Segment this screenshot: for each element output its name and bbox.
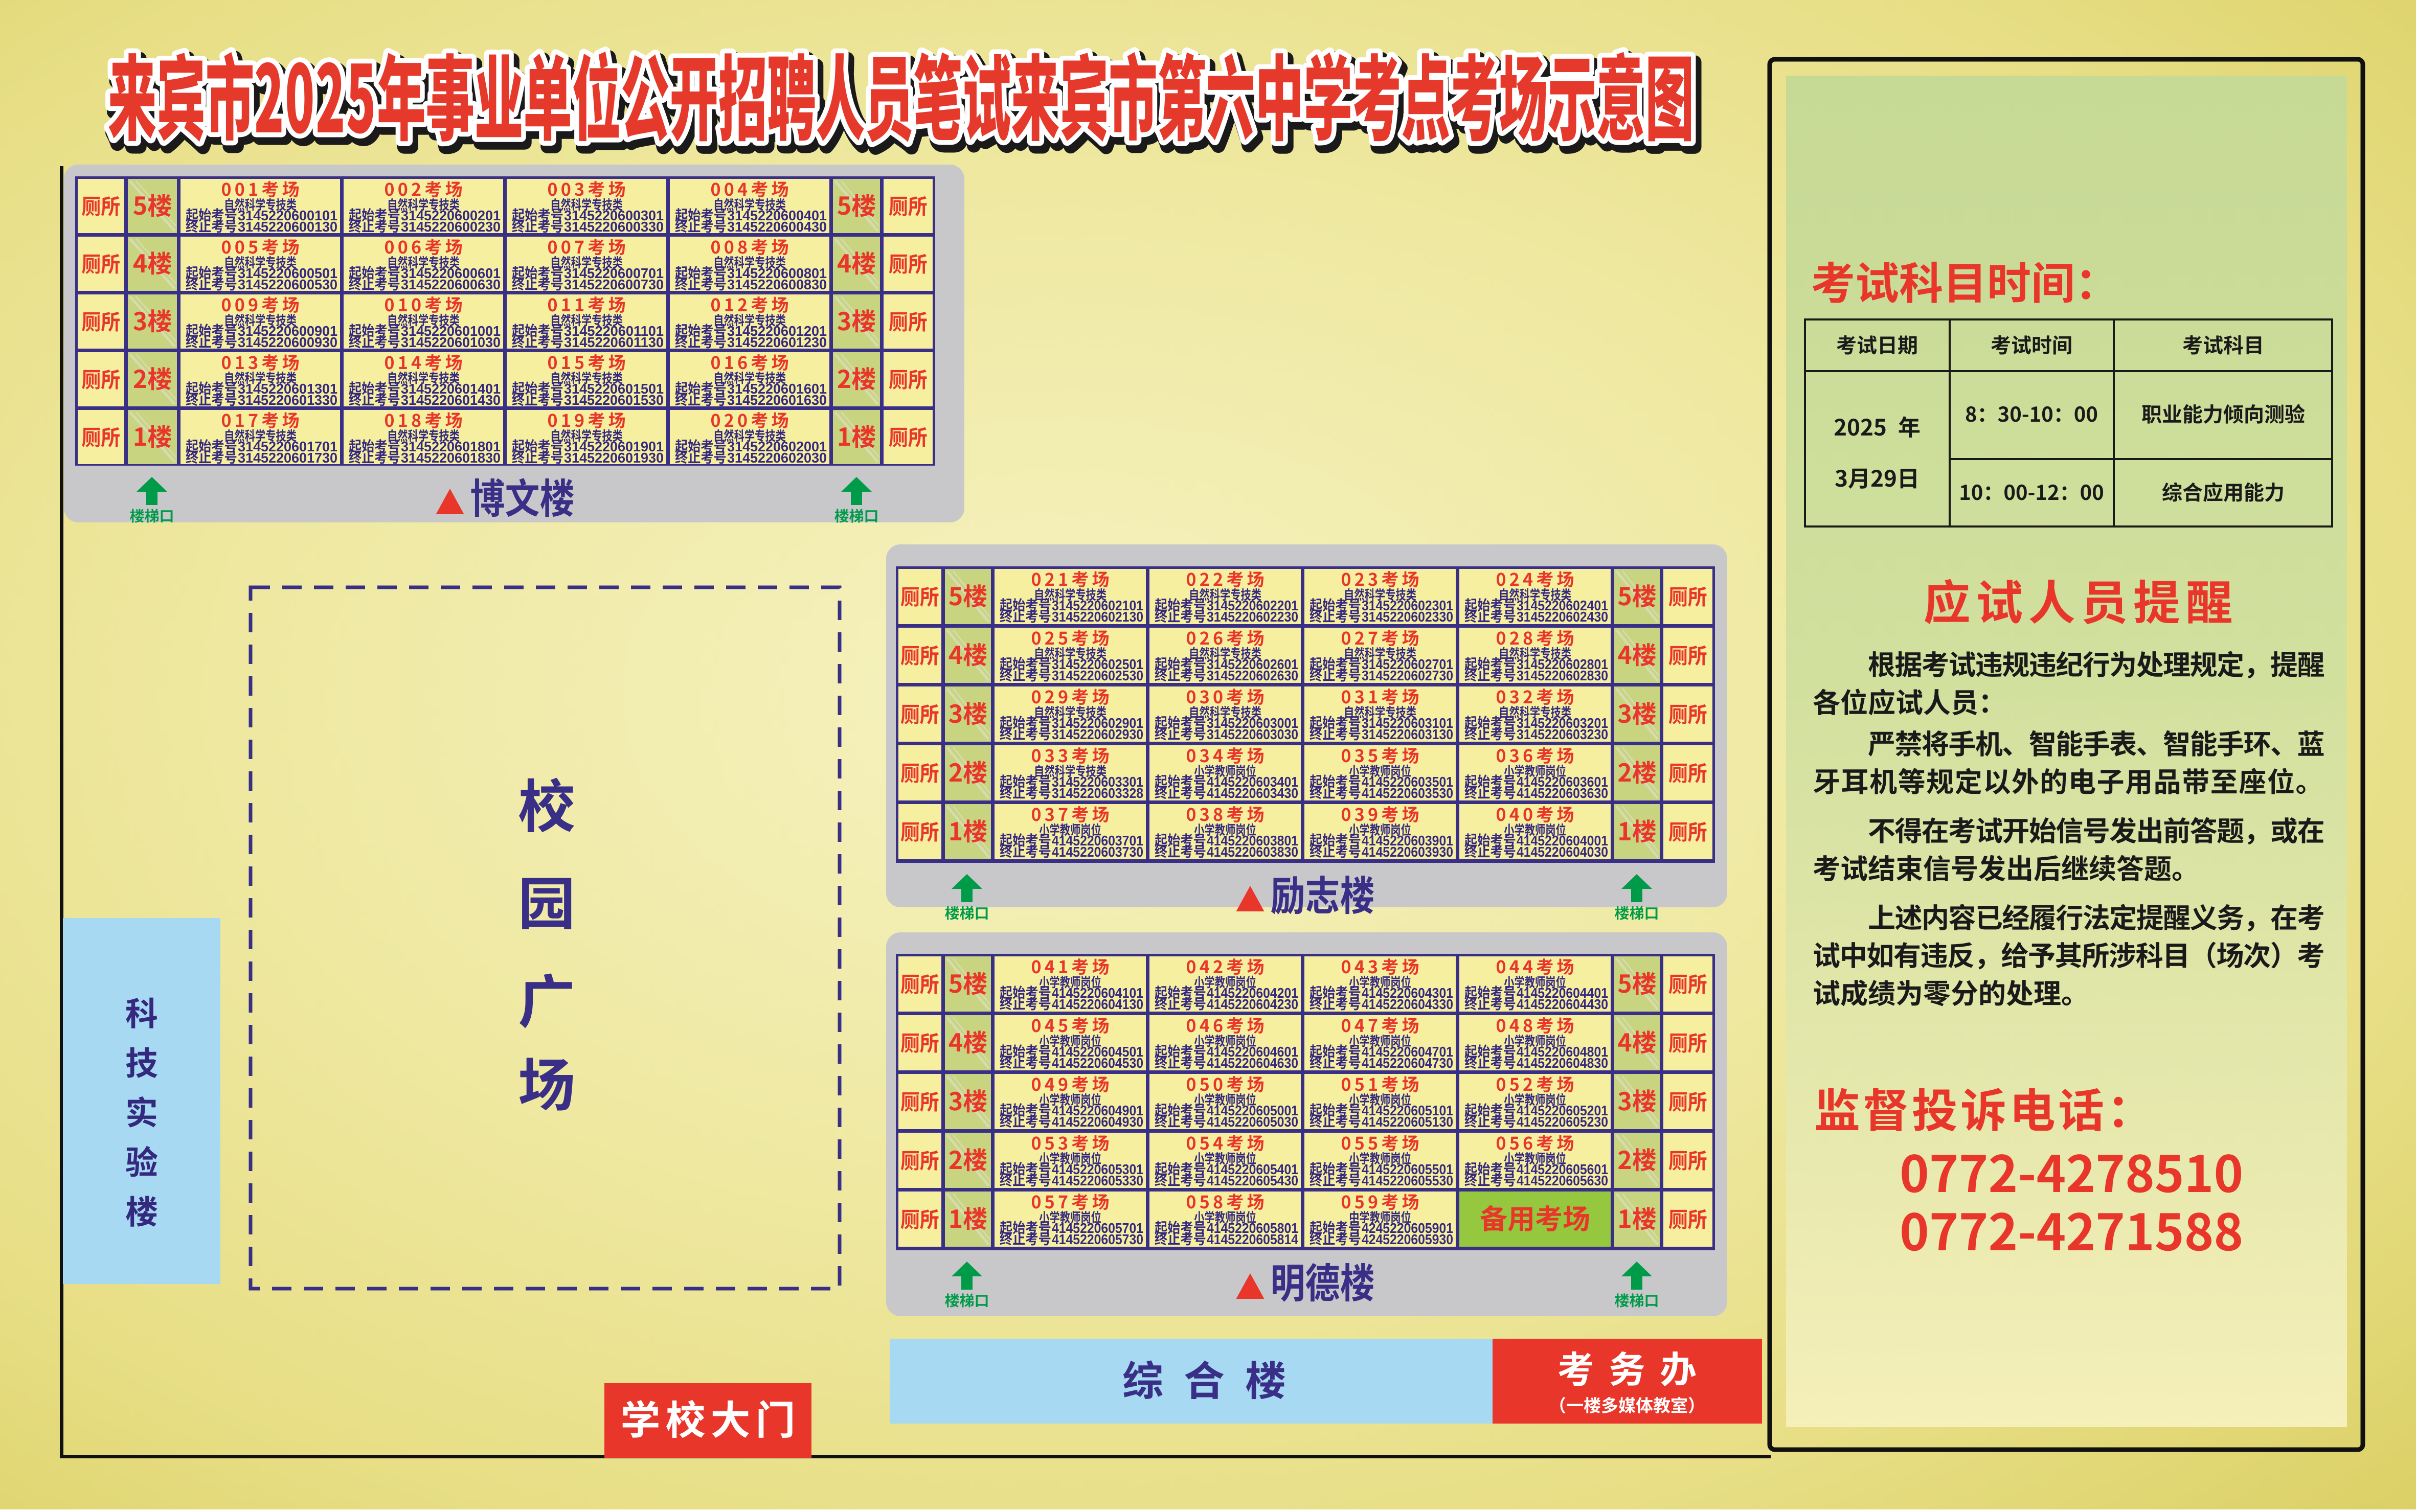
svg-text:3145220601130: 3145220601130 bbox=[564, 334, 664, 350]
svg-text:3145220603030: 3145220603030 bbox=[1207, 726, 1298, 742]
svg-text:3145220602230: 3145220602230 bbox=[1207, 609, 1298, 625]
svg-text:3145220601430: 3145220601430 bbox=[401, 392, 501, 408]
svg-text:4145220605530: 4145220605530 bbox=[1362, 1173, 1453, 1188]
svg-text:3145220601230: 3145220601230 bbox=[727, 334, 827, 350]
svg-text:3145220603130: 3145220603130 bbox=[1362, 726, 1453, 742]
svg-text:3145220602530: 3145220602530 bbox=[1052, 668, 1143, 683]
svg-text:3145220600330: 3145220600330 bbox=[564, 219, 664, 235]
svg-text:4145220603430: 4145220603430 bbox=[1207, 785, 1298, 801]
svg-text:3145220600630: 3145220600630 bbox=[401, 277, 501, 292]
svg-text:4145220604230: 4145220604230 bbox=[1207, 996, 1298, 1012]
svg-text:4145220605030: 4145220605030 bbox=[1207, 1114, 1298, 1130]
svg-text:3145220603328: 3145220603328 bbox=[1052, 785, 1143, 801]
svg-text:3145220601930: 3145220601930 bbox=[564, 450, 664, 466]
svg-text:4145220605730: 4145220605730 bbox=[1052, 1231, 1143, 1247]
svg-text:4145220604130: 4145220604130 bbox=[1052, 996, 1143, 1012]
svg-text:3145220602830: 3145220602830 bbox=[1517, 668, 1608, 683]
svg-text:3145220601030: 3145220601030 bbox=[401, 334, 501, 350]
svg-text:4245220605930: 4245220605930 bbox=[1362, 1231, 1453, 1247]
svg-text:3145220603230: 3145220603230 bbox=[1517, 726, 1608, 742]
svg-text:4145220605814: 4145220605814 bbox=[1207, 1231, 1298, 1247]
svg-text:4145220604330: 4145220604330 bbox=[1362, 996, 1453, 1012]
svg-text:3145220600430: 3145220600430 bbox=[727, 219, 827, 235]
svg-text:4145220604730: 4145220604730 bbox=[1362, 1055, 1453, 1071]
svg-text:4145220603730: 4145220603730 bbox=[1052, 844, 1143, 860]
svg-text:4145220604030: 4145220604030 bbox=[1517, 844, 1608, 860]
svg-text:3145220601630: 3145220601630 bbox=[727, 392, 827, 408]
svg-text:3145220601730: 3145220601730 bbox=[238, 450, 337, 466]
svg-text:4145220605130: 4145220605130 bbox=[1362, 1114, 1453, 1130]
svg-text:3145220600130: 3145220600130 bbox=[238, 219, 337, 235]
svg-text:3145220602430: 3145220602430 bbox=[1517, 609, 1608, 625]
svg-text:3145220600230: 3145220600230 bbox=[401, 219, 501, 235]
svg-text:3145220602630: 3145220602630 bbox=[1207, 668, 1298, 683]
svg-text:4145220603930: 4145220603930 bbox=[1362, 844, 1453, 860]
svg-text:4145220603630: 4145220603630 bbox=[1517, 785, 1608, 801]
svg-text:4145220603830: 4145220603830 bbox=[1207, 844, 1298, 860]
svg-text:3145220602930: 3145220602930 bbox=[1052, 726, 1143, 742]
svg-text:3145220602730: 3145220602730 bbox=[1362, 668, 1453, 683]
svg-text:3145220602130: 3145220602130 bbox=[1052, 609, 1143, 625]
svg-text:4145220604530: 4145220604530 bbox=[1052, 1055, 1143, 1071]
svg-text:3145220601330: 3145220601330 bbox=[238, 392, 337, 408]
svg-text:3145220602030: 3145220602030 bbox=[727, 450, 827, 466]
svg-text:3145220601830: 3145220601830 bbox=[401, 450, 501, 466]
svg-text:4145220603530: 4145220603530 bbox=[1362, 785, 1453, 801]
svg-text:4145220605430: 4145220605430 bbox=[1207, 1173, 1298, 1188]
svg-text:4145220605630: 4145220605630 bbox=[1517, 1173, 1608, 1188]
svg-text:4145220604630: 4145220604630 bbox=[1207, 1055, 1298, 1071]
svg-text:3145220600930: 3145220600930 bbox=[238, 334, 337, 350]
svg-text:3145220600530: 3145220600530 bbox=[238, 277, 337, 292]
svg-text:4145220604830: 4145220604830 bbox=[1517, 1055, 1608, 1071]
svg-text:3145220602330: 3145220602330 bbox=[1362, 609, 1453, 625]
svg-text:4145220605230: 4145220605230 bbox=[1517, 1114, 1608, 1130]
svg-text:3145220600730: 3145220600730 bbox=[564, 277, 664, 292]
svg-text:3145220601530: 3145220601530 bbox=[564, 392, 664, 408]
svg-text:4145220604430: 4145220604430 bbox=[1517, 996, 1608, 1012]
svg-text:4145220604930: 4145220604930 bbox=[1052, 1114, 1143, 1130]
svg-text:4145220605330: 4145220605330 bbox=[1052, 1173, 1143, 1188]
svg-text:3145220600830: 3145220600830 bbox=[727, 277, 827, 292]
